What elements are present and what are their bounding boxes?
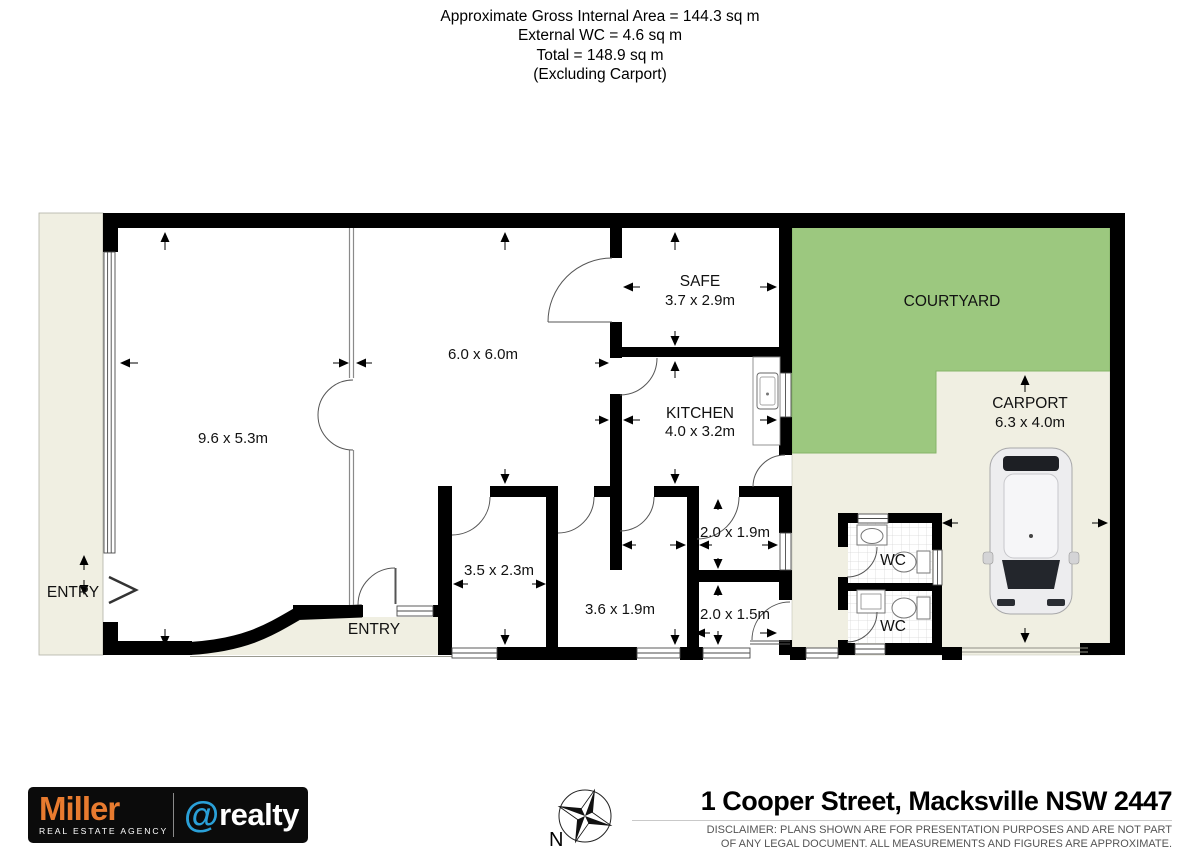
- disclaimer-line1: DISCLAIMER: PLANS SHOWN ARE FOR PRESENTA…: [632, 824, 1172, 838]
- floorplan-drawing: 9.6 x 5.3m 6.0 x 6.0m SAFE 3.7 x 2.9m KI…: [0, 0, 1200, 853]
- floorplan-page: Approximate Gross Internal Area = 144.3 …: [0, 0, 1200, 853]
- window-west-wall: [104, 252, 115, 553]
- compass-north-label: N: [549, 829, 563, 851]
- toilet-tank-upper: [917, 551, 930, 573]
- miller-brand-text: Miller: [39, 794, 171, 824]
- door-kitchen-exterior: [753, 455, 785, 487]
- door-hall-west: [558, 497, 594, 533]
- label-kitchen-dims: 4.0 x 3.2m: [665, 423, 735, 440]
- car-mirror-left: [983, 552, 993, 564]
- label-hall-dims: 3.6 x 1.9m: [585, 601, 655, 618]
- door-safe: [548, 258, 612, 322]
- label-safe-name: SAFE: [680, 273, 720, 290]
- partition-wall: [350, 228, 354, 605]
- car-mirror-right: [1069, 552, 1079, 564]
- car-roof: [1004, 474, 1058, 558]
- at-symbol: @: [184, 794, 219, 836]
- address-block: 1 Cooper Street, Macksville NSW 2447 DIS…: [632, 786, 1172, 851]
- label-lounge-dims: 9.6 x 5.3m: [198, 430, 268, 447]
- compass-rose: N: [545, 784, 629, 853]
- label-store-upper-dims: 2.0 x 1.9m: [700, 524, 770, 541]
- logo-divider: [173, 793, 174, 837]
- label-living-dims: 6.0 x 6.0m: [448, 346, 518, 363]
- miller-logo-block: Miller REAL ESTATE AGENCY: [28, 794, 171, 836]
- label-entry-west: ENTRY: [47, 584, 99, 601]
- double-door-partition: [318, 380, 353, 415]
- label-carport-name: CARPORT: [992, 395, 1068, 412]
- kitchen-counter: [753, 357, 780, 445]
- label-room-3-5-dims: 3.5 x 2.3m: [464, 562, 534, 579]
- agency-logo: Miller REAL ESTATE AGENCY @realty: [28, 787, 308, 843]
- car-top-view: [983, 448, 1079, 614]
- label-wc-upper: WC: [880, 552, 906, 569]
- label-courtyard: COURTYARD: [904, 293, 1001, 310]
- doors: [109, 258, 877, 642]
- label-wc-lower: WC: [880, 618, 906, 635]
- label-kitchen-name: KITCHEN: [666, 405, 734, 422]
- disclaimer-line2: OF ANY LEGAL DOCUMENT. ALL MEASUREMENTS …: [632, 838, 1172, 852]
- toilet-tank-lower: [917, 597, 930, 619]
- car-rear-window: [1003, 456, 1059, 471]
- car-windshield: [1002, 560, 1060, 589]
- label-store-lower-dims: 2.0 x 1.5m: [700, 606, 770, 623]
- label-entry-main: ENTRY: [348, 621, 400, 638]
- property-address: 1 Cooper Street, Macksville NSW 2447: [632, 786, 1172, 817]
- door-kitchen: [620, 358, 657, 395]
- atrealty-logo-block: @realty: [184, 794, 299, 836]
- door-west-entry-bifold: [109, 577, 136, 603]
- toilet-bowl-lower: [892, 598, 916, 618]
- address-divider: [632, 820, 1172, 821]
- door-hall-east: [620, 497, 654, 531]
- label-carport-dims: 6.3 x 4.0m: [995, 414, 1065, 431]
- miller-tagline: REAL ESTATE AGENCY: [39, 826, 171, 836]
- door-room-3-5: [452, 497, 490, 535]
- door-main-entry: [358, 568, 395, 605]
- label-safe-dims: 3.7 x 2.9m: [665, 292, 735, 309]
- realty-text: realty: [219, 797, 299, 833]
